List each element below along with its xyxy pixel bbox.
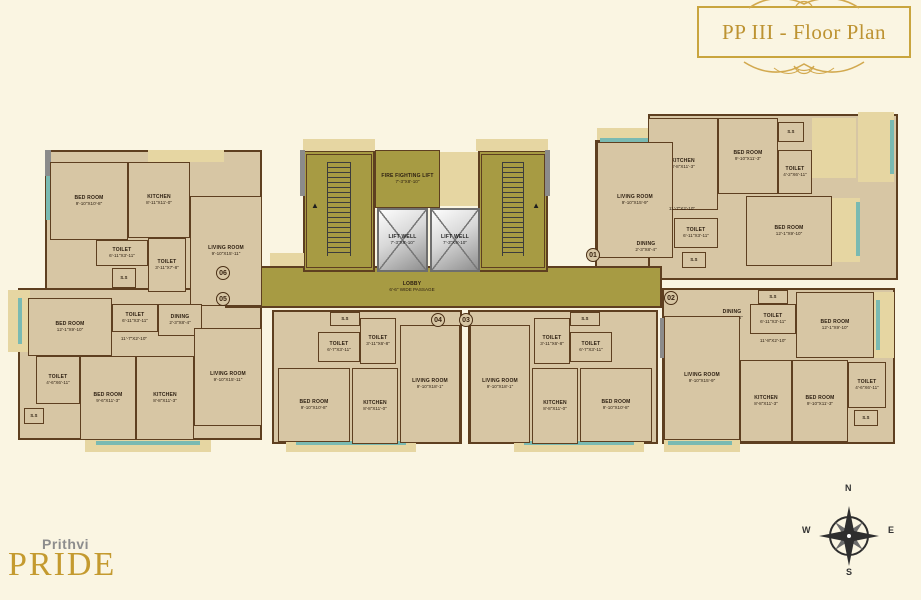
compass-south-label: S xyxy=(846,567,852,577)
stair-treads xyxy=(327,162,350,256)
wall-strip xyxy=(545,150,550,196)
toilet-01b: TOILET4'-2"X6'-11" xyxy=(778,150,812,194)
window-strip xyxy=(856,202,860,256)
shaft-02a: S.S xyxy=(758,290,788,304)
stair-up-arrow-icon: ▲ xyxy=(311,202,319,210)
lift-well-1: LIFT WELL7'-3"X9'-10" xyxy=(377,208,428,272)
balcony-strip xyxy=(440,152,478,206)
window-strip xyxy=(96,441,200,445)
shaft-06: S.S xyxy=(112,268,136,288)
kitchen-05: KITCHEN8'-8"X11'-3" xyxy=(136,356,194,440)
toilet-05a: TOILET6'-11"X3'-11" xyxy=(112,304,158,332)
floor-plan-page: ▲▲FIRE FIGHTING LIFT7'-3"X8'-10"LIFT WEL… xyxy=(0,0,921,600)
toilet-04a: TOILET6'-7"X3'-11" xyxy=(318,332,360,362)
title-plate: PP III - Floor Plan xyxy=(697,6,911,58)
toilet-03a: TOILET6'-7"X3'-11" xyxy=(570,332,612,362)
toilet-03b: TOILET3'-11"X6'-8" xyxy=(534,318,570,364)
ornament-bottom-icon xyxy=(739,56,869,82)
kitchen-03: KITCHEN8'-8"X11'-0" xyxy=(532,368,578,444)
window-strip xyxy=(876,300,880,350)
stair-up-arrow-icon: ▲ xyxy=(532,202,540,210)
dining-01: DINING2'-3"X8'-4" xyxy=(628,238,664,256)
living-room-05: LIVING ROOM9'-10"X15'-11" xyxy=(194,328,262,426)
stair-treads xyxy=(502,162,524,256)
floor-plan-canvas: ▲▲FIRE FIGHTING LIFT7'-3"X8'-10"LIFT WEL… xyxy=(0,0,921,600)
bedroom-02b: BED ROOM9'-10"X11'-3" xyxy=(792,360,848,442)
shaft-02b: S.S xyxy=(854,410,878,426)
shaft-03: S.S xyxy=(570,312,600,326)
unit-number-01: 01 xyxy=(586,248,600,262)
kitchen-02: KITCHEN8'-8"X11'-3" xyxy=(740,360,792,442)
compass-west-label: W xyxy=(802,525,811,535)
unit-number-04: 04 xyxy=(431,313,445,327)
compass-east-label: E xyxy=(888,525,894,535)
living-room-02: LIVING ROOM9'-10"X15'-9" xyxy=(664,316,740,440)
fire-fighting-lift: FIRE FIGHTING LIFT7'-3"X8'-10" xyxy=(375,150,440,208)
kitchen-04: KITCHEN8'-8"X11'-0" xyxy=(352,368,398,444)
lobby: LOBBY6'-6" WIDE PASSAGE xyxy=(352,277,472,297)
bedroom-05a: BED ROOM12'-1"X9'-10" xyxy=(28,298,112,356)
balcony-strip xyxy=(476,139,548,151)
shaft-01a: S.S xyxy=(778,122,804,142)
unit-number-05: 05 xyxy=(216,292,230,306)
compass-north-label: N xyxy=(845,483,852,493)
balcony-strip xyxy=(148,150,224,162)
bedroom-03: BED ROOM9'-10"X10'-8" xyxy=(580,368,652,442)
bedroom-04: BED ROOM9'-10"X10'-8" xyxy=(278,368,350,442)
wall-strip xyxy=(300,150,305,196)
compass-star-icon xyxy=(817,504,881,568)
bedroom-01a: BED ROOM9'-10"X11'-3" xyxy=(718,118,778,194)
staircase-right: ▲ xyxy=(481,154,545,268)
page-title: PP III - Floor Plan xyxy=(722,20,886,45)
window-strip xyxy=(890,120,894,174)
toilet-04b: TOILET3'-11"X6'-8" xyxy=(360,318,396,364)
brand-logo: Prithvi PRIDE xyxy=(8,536,158,582)
passage-02: 11'-8"X2'-10" xyxy=(742,336,804,346)
lift-well-2: LIFT WELL7'-3"X9'-10" xyxy=(430,208,480,272)
unit-number-06: 06 xyxy=(216,266,230,280)
window-strip xyxy=(18,298,22,344)
living-room-04: LIVING ROOM9'-10"X18'-1" xyxy=(400,325,460,443)
brand-name-main: PRIDE xyxy=(8,548,158,582)
toilet-02a: TOILET6'-11"X3'-11" xyxy=(750,304,796,334)
bedroom-02a: BED ROOM12'-1"X9'-10" xyxy=(796,292,874,358)
living-room-03: LIVING ROOM9'-10"X18'-1" xyxy=(470,325,530,443)
bedroom-05b: BED ROOM9'-6"X11'-3" xyxy=(80,356,136,440)
toilet-02b: TOILET4'-6"X6'-11" xyxy=(848,362,886,408)
toilet-01a: TOILET6'-11"X3'-11" xyxy=(674,218,718,248)
balcony-strip xyxy=(270,253,304,266)
toilet-06a: TOILET6'-11"X3'-11" xyxy=(96,240,148,266)
passage-05: 11'-7"X2'-10" xyxy=(102,334,166,344)
shaft-04: S.S xyxy=(330,312,360,326)
living-room-06: LIVING ROOM9'-10"X15'-11" xyxy=(190,196,262,306)
compass-rose: N E S W xyxy=(800,483,900,583)
staircase-left: ▲ xyxy=(306,154,372,268)
window-strip xyxy=(668,441,732,445)
shaft-01b: S.S xyxy=(682,252,706,268)
balcony-strip xyxy=(858,112,894,182)
unit-number-02: 02 xyxy=(664,291,678,305)
toilet-05b: TOILET4'-6"X6'-11" xyxy=(36,356,80,404)
shaft-05: S.S xyxy=(24,408,44,424)
ornament-top-icon xyxy=(744,0,864,10)
balcony-strip xyxy=(812,118,856,178)
bedroom-06: BED ROOM9'-10"X10'-8" xyxy=(50,162,128,240)
toilet-06b: TOILET3'-11"X7'-8" xyxy=(148,238,186,292)
kitchen-06: KITCHEN8'-11"X11'-0" xyxy=(128,162,190,238)
balcony-strip xyxy=(303,139,375,151)
unit-number-03: 03 xyxy=(459,313,473,327)
bedroom-01b: BED ROOM12'-1"X9'-10" xyxy=(746,196,832,266)
passage-01: 11'-7"X2'-10" xyxy=(650,204,714,214)
